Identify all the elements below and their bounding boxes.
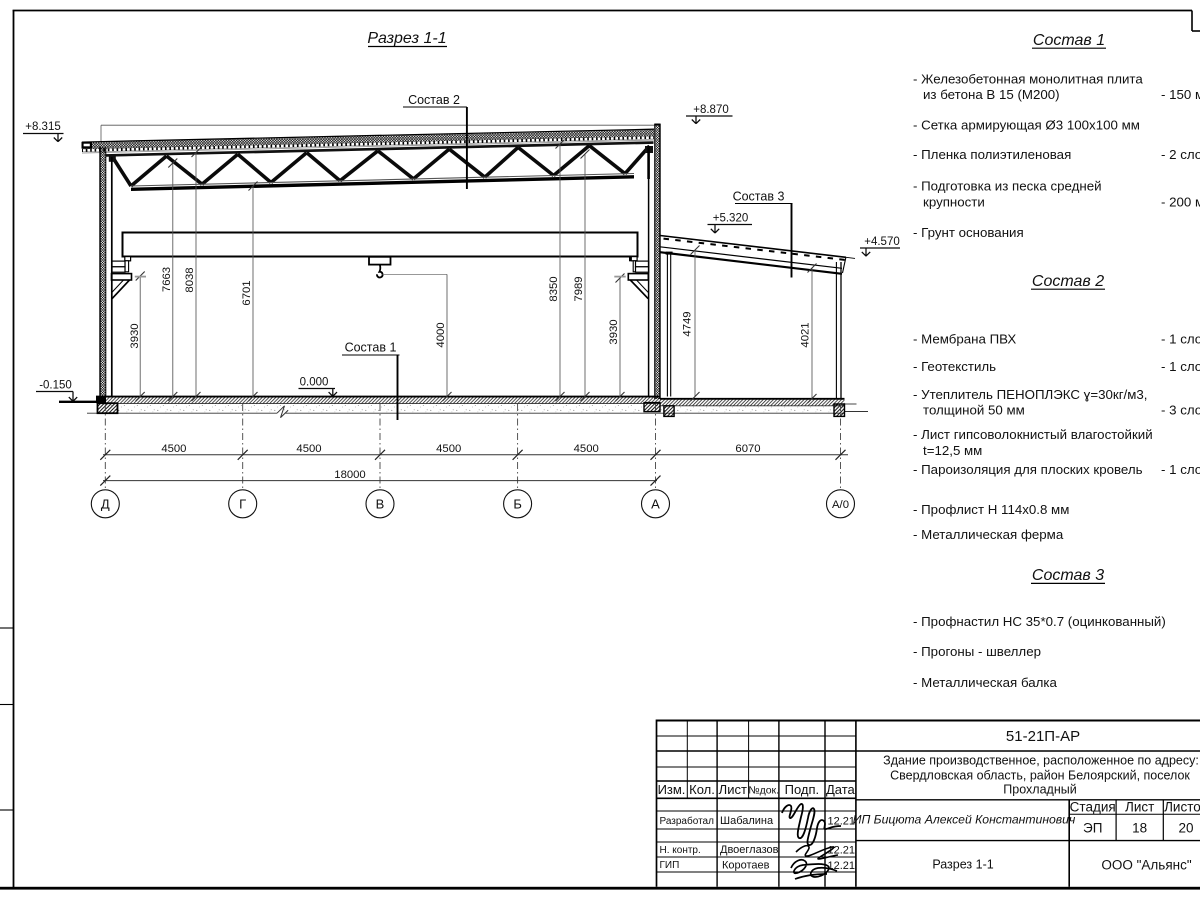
svg-text:А: А <box>651 496 660 511</box>
svg-text:3930: 3930 <box>129 323 141 348</box>
svg-text:- Пароизоляция для плоских кро: - Пароизоляция для плоских кровель <box>913 462 1143 477</box>
svg-text:Разрез 1-1: Разрез 1-1 <box>367 30 446 47</box>
svg-text:- Прогоны - швеллер: - Прогоны - швеллер <box>913 644 1041 659</box>
svg-text:+8.870: +8.870 <box>693 104 729 116</box>
svg-text:Состав 3: Состав 3 <box>733 190 785 204</box>
svg-text:+4.570: +4.570 <box>864 236 900 248</box>
svg-text:Состав 1: Состав 1 <box>345 341 397 355</box>
svg-text:ООО "Альянс": ООО "Альянс" <box>1101 858 1191 873</box>
svg-text:Здание производственное, распо: Здание производственное, расположенное п… <box>883 754 1199 768</box>
svg-text:4500: 4500 <box>161 443 186 455</box>
svg-text:- Мембрана ПВХ: - Мембрана ПВХ <box>913 332 1016 347</box>
svg-text:Изм.: Изм. <box>658 782 686 797</box>
svg-text:t=12,5 мм: t=12,5 мм <box>923 443 982 458</box>
svg-text:4500: 4500 <box>296 443 321 455</box>
svg-text:18: 18 <box>1132 821 1147 836</box>
svg-text:+5.320: +5.320 <box>713 213 749 225</box>
svg-text:51-21П-АР: 51-21П-АР <box>1006 728 1080 745</box>
svg-text:Шабалина: Шабалина <box>720 815 774 827</box>
svg-text:Разработал: Разработал <box>660 815 715 827</box>
svg-text:- Лист гипсоволокнистый влагос: - Лист гипсоволокнистый влагостойкий <box>913 427 1153 442</box>
svg-text:из бетона В 15 (М200): из бетона В 15 (М200) <box>923 87 1060 102</box>
svg-text:А/0: А/0 <box>832 499 849 511</box>
svg-text:7663: 7663 <box>161 267 173 292</box>
svg-text:- 1 слой: - 1 слой <box>1161 332 1200 347</box>
svg-text:- 3 слоя: - 3 слоя <box>1161 403 1200 418</box>
svg-text:- Металлическая балка: - Металлическая балка <box>913 675 1058 690</box>
svg-text:Свердловская область, район Бе: Свердловская область, район Белоярский, … <box>890 769 1190 783</box>
svg-text:ИП Бицюта Алексей Константинов: ИП Бицюта Алексей Константинович <box>853 813 1076 827</box>
svg-text:12.21: 12.21 <box>828 816 856 828</box>
svg-text:4500: 4500 <box>436 443 461 455</box>
svg-text:Состав 1: Состав 1 <box>1033 32 1105 49</box>
svg-text:Б: Б <box>513 496 522 511</box>
svg-text:Н. контр.: Н. контр. <box>660 845 701 856</box>
svg-text:- Профнастил НС 35*0.7 (оцинко: - Профнастил НС 35*0.7 (оцинкованный) <box>913 614 1166 629</box>
svg-text:Лист: Лист <box>719 782 747 797</box>
svg-text:Листов: Листов <box>1164 800 1200 815</box>
svg-text:7989: 7989 <box>573 276 585 301</box>
svg-text:6070: 6070 <box>735 443 760 455</box>
svg-text:18000: 18000 <box>334 469 365 481</box>
svg-text:ЭП: ЭП <box>1083 821 1102 836</box>
svg-text:- 1 слой: - 1 слой <box>1161 462 1200 477</box>
svg-text:- 200 мм: - 200 мм <box>1161 194 1200 209</box>
svg-text:Г: Г <box>239 496 246 511</box>
svg-text:6701: 6701 <box>241 280 253 305</box>
svg-text:- Металлическая ферма: - Металлическая ферма <box>913 527 1064 542</box>
svg-text:- Грунт основания: - Грунт основания <box>913 225 1024 240</box>
svg-text:толщиной 50 мм: толщиной 50 мм <box>923 403 1025 418</box>
svg-text:Кол.: Кол. <box>689 782 715 797</box>
svg-text:- Подготовка из песка средней: - Подготовка из песка средней <box>913 179 1102 194</box>
svg-text:Лист: Лист <box>1125 800 1154 815</box>
svg-text:крупности: крупности <box>923 194 985 209</box>
svg-text:ГИП: ГИП <box>660 860 680 871</box>
svg-text:-0.150: -0.150 <box>39 380 72 392</box>
svg-text:Разрез 1-1: Разрез 1-1 <box>932 858 993 872</box>
svg-text:- Геотекстиль: - Геотекстиль <box>913 359 996 374</box>
svg-text:4000: 4000 <box>435 322 447 347</box>
svg-text:- 150 мм: - 150 мм <box>1161 87 1200 102</box>
svg-text:- Сетка армирующая Ø3 100х100: - Сетка армирующая Ø3 100х100 мм <box>913 118 1140 133</box>
svg-text:8038: 8038 <box>184 267 196 292</box>
svg-text:Дата: Дата <box>826 782 856 797</box>
svg-text:4021: 4021 <box>800 322 812 347</box>
svg-text:Д: Д <box>101 496 110 511</box>
svg-text:- Пленка полиэтиленовая: - Пленка полиэтиленовая <box>913 147 1071 162</box>
svg-text:12.21: 12.21 <box>828 860 856 872</box>
svg-text:3930: 3930 <box>608 319 620 344</box>
svg-text:Состав 3: Состав 3 <box>1032 567 1104 584</box>
svg-text:В: В <box>376 496 385 511</box>
svg-text:4749: 4749 <box>682 311 694 336</box>
svg-text:4500: 4500 <box>574 443 599 455</box>
svg-text:8350: 8350 <box>548 276 560 301</box>
svg-text:Состав 2: Состав 2 <box>1032 273 1104 290</box>
svg-text:№док.: №док. <box>748 785 779 797</box>
svg-text:+8.315: +8.315 <box>25 121 61 133</box>
svg-text:- Профлист Н 114х0.8 мм: - Профлист Н 114х0.8 мм <box>913 502 1069 517</box>
svg-text:Двоеглазов: Двоеглазов <box>720 844 779 856</box>
svg-text:- Железобетонная монолитная п: - Железобетонная монолитная плита <box>913 72 1143 87</box>
svg-text:Прохладный: Прохладный <box>1003 783 1076 797</box>
svg-text:0.000: 0.000 <box>300 377 329 389</box>
svg-text:Стадия: Стадия <box>1070 800 1116 815</box>
svg-text:Состав 2: Состав 2 <box>408 93 460 107</box>
svg-text:20: 20 <box>1178 821 1193 836</box>
svg-text:- 1 слой: - 1 слой <box>1161 359 1200 374</box>
svg-text:- 2 слоя: - 2 слоя <box>1161 147 1200 162</box>
svg-text:Подп.: Подп. <box>785 782 820 797</box>
svg-text:- Утеплитель ПЕНОПЛЭКС ɣ=30кг/: - Утеплитель ПЕНОПЛЭКС ɣ=30кг/м3, <box>913 387 1147 402</box>
svg-text:Коротаев: Коротаев <box>722 860 770 872</box>
